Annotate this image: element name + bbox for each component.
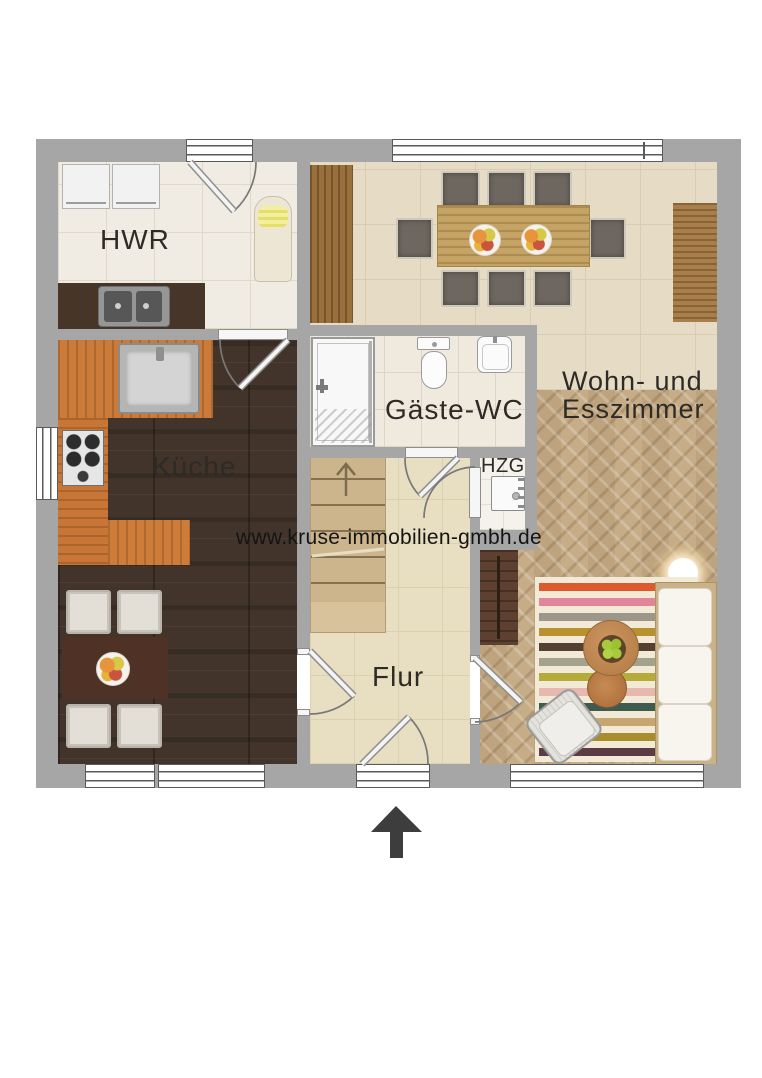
wall-wc-right (525, 336, 537, 550)
kitchen-window-left (36, 427, 58, 500)
dining-chair (396, 218, 433, 259)
stove (62, 430, 104, 486)
floorplan-canvas: HWR Küche Gäste-WC HZG Flur Wohn- und Es… (0, 0, 762, 1078)
window-divider (643, 142, 645, 159)
room-label-hzg: HZG (481, 455, 525, 478)
faucet-icon (143, 303, 149, 309)
sofa-cushion (658, 646, 712, 704)
dining-chair (441, 171, 480, 208)
heater-vent (518, 478, 524, 510)
kitchen-chair (117, 704, 162, 748)
shower-head-icon (320, 379, 324, 393)
dining-chair (441, 270, 480, 307)
dining-table (437, 205, 590, 267)
faucet-icon (156, 347, 164, 361)
living-window-bottom (510, 764, 704, 788)
towel-texture (315, 409, 371, 443)
flush-button (432, 342, 437, 347)
outer-wall-right (717, 139, 741, 788)
room-label-wohn-line1: Wohn- und (562, 366, 703, 397)
wall-wc-bottom (310, 447, 405, 458)
room-label-kueche: Küche (152, 451, 236, 483)
north-arrow-icon (371, 806, 422, 858)
sink-basin (136, 291, 162, 322)
door-jamb (470, 718, 480, 725)
shower (311, 337, 375, 447)
sofa (655, 582, 717, 765)
door-sill (218, 329, 288, 340)
dining-chair (487, 270, 526, 307)
washbasin (477, 336, 512, 373)
coffee-table (583, 620, 639, 676)
kitchen-window-bottom (85, 764, 155, 788)
laundry-pile (258, 206, 288, 228)
kitchen-counter-bottom (108, 520, 190, 565)
toilet-tank (417, 337, 450, 350)
wall-flur-living (470, 447, 480, 467)
kitchen-chair (66, 704, 111, 748)
tv-board-groove (497, 556, 500, 639)
washing-machine (62, 164, 110, 209)
kitchen-window-bottom (158, 764, 265, 788)
dining-chair (487, 171, 526, 208)
kitchen-chair (117, 590, 162, 634)
hwr-double-sink (98, 286, 170, 327)
sideboard-right (673, 203, 717, 322)
entry-door-frame (356, 764, 430, 788)
fruit-plate (521, 224, 552, 255)
room-label-gaestewc: Gäste-WC (385, 394, 524, 426)
basin (482, 344, 509, 370)
room-label-flur: Flur (372, 661, 424, 693)
wall-hwr-kitchen (288, 329, 297, 340)
toilet-bowl (421, 351, 447, 389)
dining-chair (589, 218, 626, 259)
wall-spine-upper (297, 162, 310, 648)
fruit-plate (469, 224, 501, 256)
dining-chair (533, 171, 572, 208)
wall-flur-living (470, 725, 480, 764)
hzg-door-leaf (469, 467, 481, 518)
room-label-hwr: HWR (100, 224, 170, 256)
sofa-cushion (658, 588, 712, 646)
hwr-entry-door-frame (186, 139, 253, 162)
dryer (112, 164, 160, 209)
stair-landing (311, 602, 385, 632)
kitchen-fruit-bowl (96, 652, 130, 686)
door-jamb (470, 655, 480, 662)
wall-spine-lower (297, 716, 310, 764)
door-jamb (297, 709, 310, 716)
apple-bowl (598, 635, 626, 663)
watermark-text: www.kruse-immobilien-gmbh.de (236, 526, 542, 550)
sofa-cushion (658, 704, 712, 761)
sideboard-left (310, 165, 353, 323)
tv-board (480, 550, 518, 645)
door-jamb (297, 648, 310, 655)
room-label-wohn-line2: Esszimmer (562, 394, 705, 425)
kitchen-chair (66, 590, 111, 634)
kitchen-sink (118, 343, 200, 414)
dining-chair (533, 270, 572, 307)
wall-hwr-kitchen (58, 329, 218, 340)
dining-window (392, 139, 663, 162)
door-sill (405, 447, 458, 458)
ironing-board (254, 196, 292, 282)
faucet-icon (115, 303, 121, 309)
wall-wc-top (310, 325, 537, 336)
